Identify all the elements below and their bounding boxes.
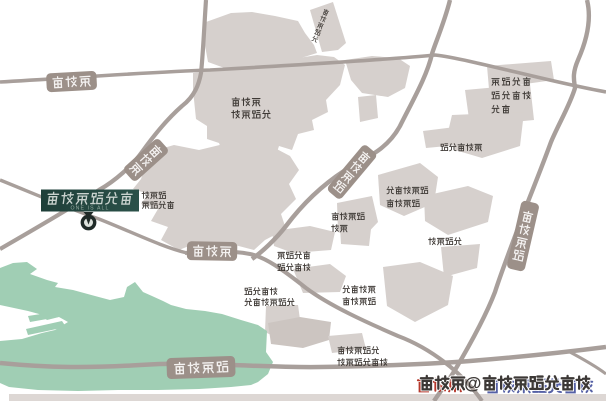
svg-text:ONE IS ALL: ONE IS ALL <box>71 205 110 211</box>
svg-text:@: @ <box>464 373 481 393</box>
